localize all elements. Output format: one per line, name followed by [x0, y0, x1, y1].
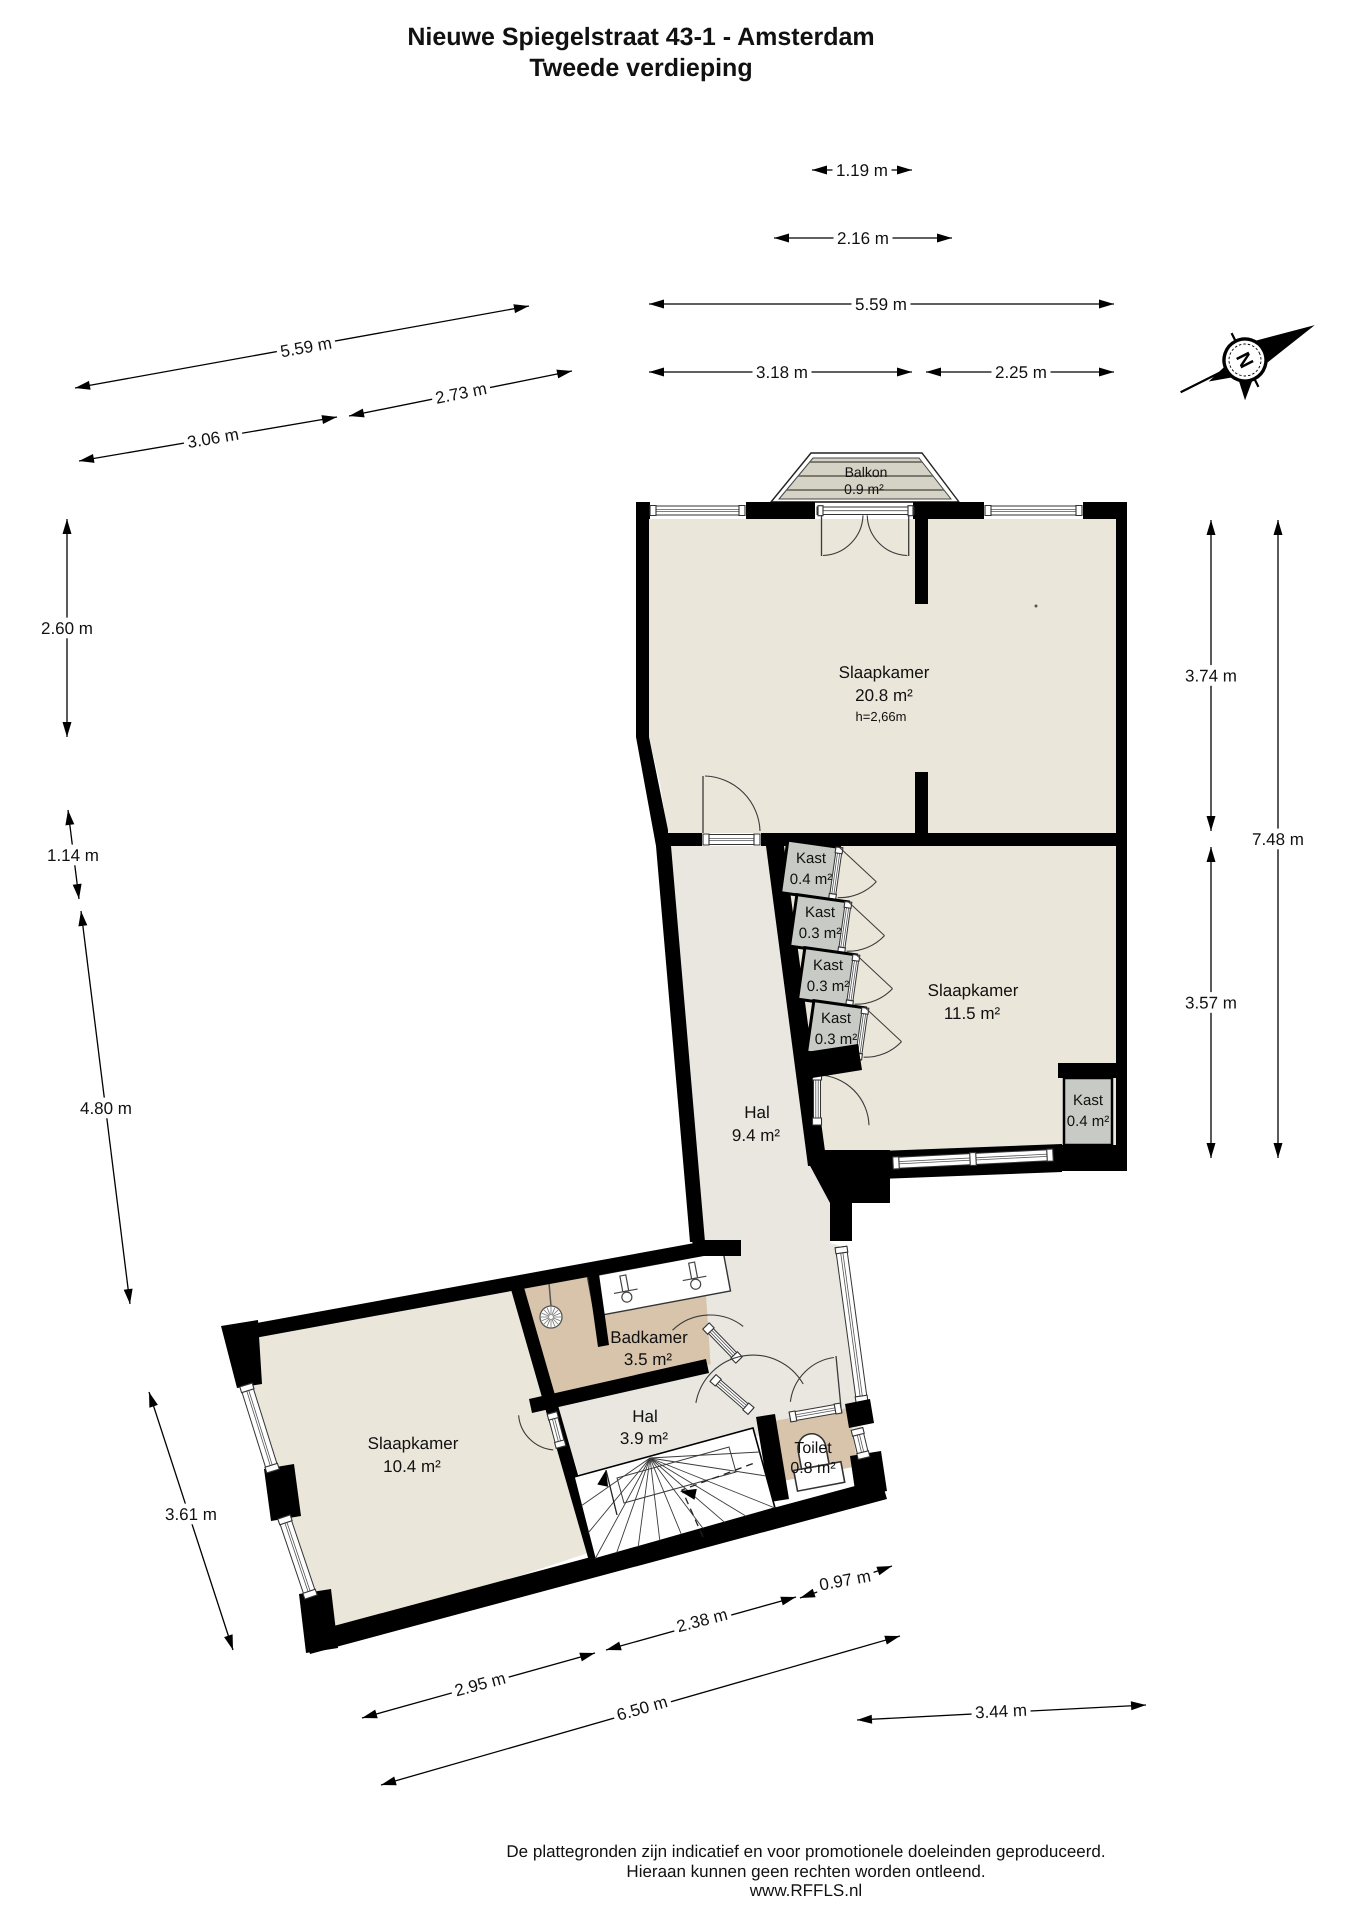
- svg-text:7.48 m: 7.48 m: [1252, 830, 1304, 849]
- svg-text:Slaapkamer: Slaapkamer: [368, 1434, 459, 1453]
- svg-text:20.8 m²: 20.8 m²: [855, 686, 913, 705]
- svg-text:Kast: Kast: [813, 957, 844, 974]
- svg-text:1.14 m: 1.14 m: [47, 846, 99, 865]
- svg-text:3.5 m²: 3.5 m²: [624, 1350, 673, 1369]
- svg-text:0.4 m²: 0.4 m²: [790, 871, 833, 888]
- svg-text:0.9 m²: 0.9 m²: [844, 481, 884, 497]
- svg-text:Toilet: Toilet: [794, 1440, 832, 1457]
- svg-text:9.4 m²: 9.4 m²: [732, 1126, 781, 1145]
- svg-text:3.9 m²: 3.9 m²: [620, 1429, 669, 1448]
- svg-text:11.5 m²: 11.5 m²: [944, 1004, 1001, 1023]
- svg-text:0.3 m²: 0.3 m²: [807, 978, 850, 995]
- svg-text:3.57 m: 3.57 m: [1185, 994, 1237, 1013]
- svg-text:3.61 m: 3.61 m: [165, 1505, 217, 1524]
- svg-text:Hieraan kunnen geen rechten wo: Hieraan kunnen geen rechten worden ontle…: [626, 1862, 985, 1881]
- svg-text:3.74 m: 3.74 m: [1185, 667, 1237, 686]
- svg-text:Nieuwe Spiegelstraat 43-1 - Am: Nieuwe Spiegelstraat 43-1 - Amsterdam: [407, 23, 874, 51]
- svg-text:10.4 m²: 10.4 m²: [383, 1457, 441, 1476]
- svg-text:Hal: Hal: [744, 1103, 770, 1122]
- svg-text:0.4 m²: 0.4 m²: [1067, 1113, 1110, 1130]
- svg-text:h=2,66m: h=2,66m: [856, 709, 907, 724]
- svg-text:Hal: Hal: [632, 1407, 658, 1426]
- svg-text:Tweede verdieping: Tweede verdieping: [529, 54, 752, 82]
- svg-text:5.59 m: 5.59 m: [855, 295, 907, 314]
- svg-text:1.19 m: 1.19 m: [836, 161, 888, 180]
- svg-text:3.44 m: 3.44 m: [975, 1701, 1028, 1723]
- svg-text:Kast: Kast: [821, 1010, 852, 1027]
- svg-text:0.3 m²: 0.3 m²: [799, 925, 842, 942]
- svg-text:2.25 m: 2.25 m: [995, 363, 1047, 382]
- svg-text:www.RFFLS.nl: www.RFFLS.nl: [749, 1881, 862, 1900]
- svg-text:Kast: Kast: [805, 904, 836, 921]
- svg-text:0.8 m²: 0.8 m²: [790, 1460, 836, 1477]
- svg-text:2.60 m: 2.60 m: [41, 619, 93, 638]
- svg-text:Slaapkamer: Slaapkamer: [928, 981, 1019, 1000]
- svg-text:4.80 m: 4.80 m: [80, 1099, 132, 1118]
- svg-text:Badkamer: Badkamer: [610, 1328, 688, 1347]
- svg-text:De plattegronden zijn indicati: De plattegronden zijn indicatief en voor…: [506, 1842, 1105, 1861]
- svg-text:Kast: Kast: [796, 850, 827, 867]
- svg-text:3.18 m: 3.18 m: [756, 363, 808, 382]
- svg-text:Slaapkamer: Slaapkamer: [839, 663, 930, 682]
- svg-text:Kast: Kast: [1073, 1092, 1104, 1109]
- svg-text:Balkon: Balkon: [845, 464, 888, 480]
- svg-text:2.16 m: 2.16 m: [837, 229, 889, 248]
